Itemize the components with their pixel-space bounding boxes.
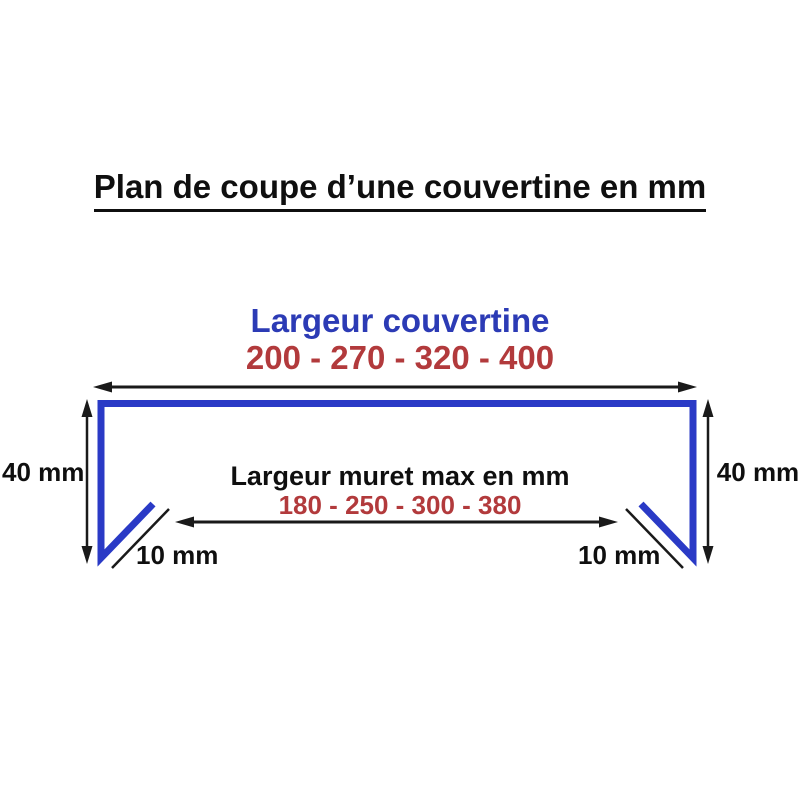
drip-label-right: 10 mm — [578, 540, 660, 571]
muret-label-row: Largeur muret max en mm — [0, 461, 800, 492]
muret-values-row: 180 - 250 - 300 - 380 — [0, 490, 800, 521]
coping-section-diagram: Plan de coupe d’une couvertine en mm Lar… — [0, 0, 800, 800]
muret-width-label: Largeur muret max en mm — [230, 461, 569, 491]
profile-drawing — [0, 0, 800, 800]
couvertine-width-arrow — [93, 382, 697, 393]
muret-width-values: 180 - 250 - 300 - 380 — [279, 490, 522, 520]
drip-label-left: 10 mm — [136, 540, 218, 571]
